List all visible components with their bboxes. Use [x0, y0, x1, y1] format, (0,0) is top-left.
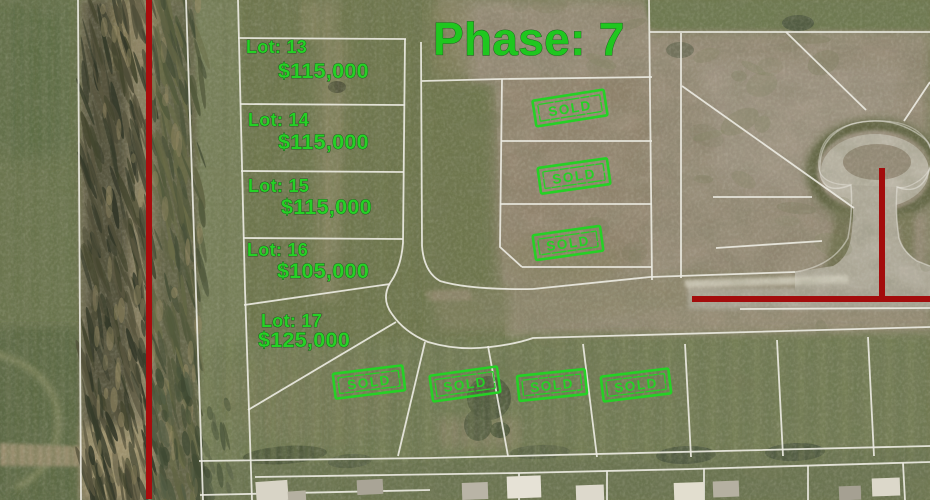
- svg-text:Lot: 16: Lot: 16: [247, 240, 308, 260]
- svg-text:$105,000: $105,000: [277, 259, 369, 283]
- svg-text:$115,000: $115,000: [281, 195, 372, 219]
- svg-text:Phase: 7: Phase: 7: [433, 13, 625, 65]
- svg-text:Lot: 13: Lot: 13: [246, 37, 307, 57]
- svg-text:$115,000: $115,000: [278, 130, 369, 154]
- svg-text:$125,000: $125,000: [258, 328, 350, 352]
- svg-text:Lot: 14: Lot: 14: [248, 110, 309, 130]
- svg-text:Lot: 15: Lot: 15: [248, 176, 309, 196]
- svg-text:$115,000: $115,000: [278, 59, 369, 83]
